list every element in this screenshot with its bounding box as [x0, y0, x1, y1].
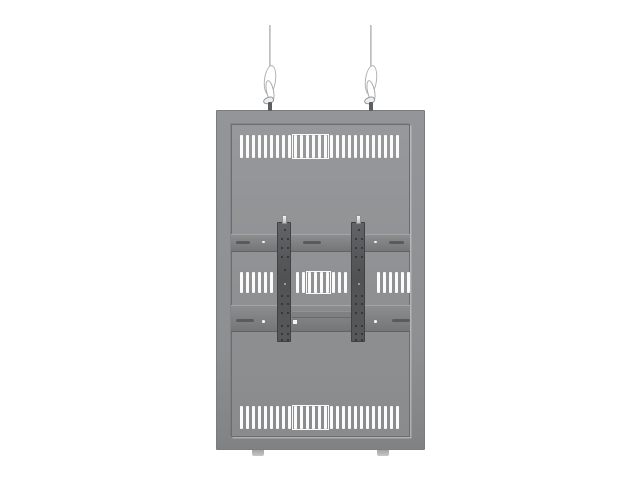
bracket-hole — [287, 247, 289, 249]
vent-slot — [332, 272, 335, 293]
vent-slot — [360, 406, 363, 429]
vent-row-top — [240, 135, 399, 158]
vent-slot — [348, 406, 351, 429]
vent-slot — [330, 135, 333, 158]
upper-mounting-rail — [231, 234, 410, 252]
vesa-bracket-arm-left — [277, 222, 291, 342]
rail-screw — [262, 241, 265, 244]
bracket-hole — [284, 229, 286, 231]
bracket-hole — [287, 339, 289, 341]
rail-screw — [262, 320, 265, 323]
vent-slot — [264, 406, 267, 429]
vent-slot — [282, 135, 285, 158]
vent-slot — [246, 272, 249, 293]
bracket-bolt-right — [356, 215, 361, 224]
bracket-hole — [355, 303, 357, 305]
vent-ladder-outline — [306, 271, 331, 294]
vent-slot — [372, 135, 375, 158]
vent-slot — [390, 135, 393, 158]
bracket-hole — [355, 312, 357, 314]
vent-slot — [258, 272, 261, 293]
bracket-hole — [361, 339, 363, 341]
bracket-hole — [281, 295, 283, 297]
vent-row-middle — [240, 272, 273, 293]
vent-slot — [396, 135, 399, 158]
bracket-hole — [287, 256, 289, 258]
vent-slot — [354, 135, 357, 158]
vent-slot — [348, 135, 351, 158]
attachment-pin-right — [369, 102, 373, 111]
vent-slot — [377, 272, 380, 293]
vent-slot — [270, 135, 273, 158]
vent-slot — [246, 135, 249, 158]
rail-slot — [236, 241, 250, 244]
vent-slot — [366, 406, 369, 429]
bracket-hole — [281, 325, 283, 327]
bracket-hole — [355, 333, 357, 335]
bracket-hole — [281, 256, 283, 258]
vent-slot — [396, 406, 399, 429]
vent-slot — [390, 406, 393, 429]
rail-slot — [303, 241, 321, 244]
bracket-hole — [361, 256, 363, 258]
vent-slot — [372, 406, 375, 429]
bracket-hole — [361, 333, 363, 335]
vent-slot — [342, 135, 345, 158]
vent-row-bottom — [240, 406, 399, 429]
rail-screw — [374, 241, 377, 244]
bracket-hole — [281, 303, 283, 305]
product-image — [0, 0, 640, 480]
bracket-hole — [284, 269, 286, 271]
vent-slot — [264, 272, 267, 293]
bracket-hole — [355, 247, 357, 249]
bracket-hole — [355, 339, 357, 341]
bracket-hole — [361, 303, 363, 305]
rail-screw — [374, 320, 377, 323]
vent-slot — [296, 272, 299, 293]
bracket-hole — [361, 247, 363, 249]
vent-slot — [384, 135, 387, 158]
vent-slot — [342, 406, 345, 429]
vent-slot — [360, 135, 363, 158]
vent-slot — [252, 406, 255, 429]
vent-slot — [389, 272, 392, 293]
bracket-hole — [287, 333, 289, 335]
bracket-hole — [287, 312, 289, 314]
bracket-hole — [287, 325, 289, 327]
bracket-hole — [287, 303, 289, 305]
bracket-hole — [355, 256, 357, 258]
vent-slot — [246, 406, 249, 429]
rail-slot — [236, 319, 254, 322]
vent-slot — [240, 135, 243, 158]
vent-slot — [401, 272, 404, 293]
vent-slot — [276, 406, 279, 429]
vent-slot — [276, 135, 279, 158]
rail-slot — [392, 319, 410, 322]
vent-slot — [282, 406, 285, 429]
bracket-bolt-left — [282, 215, 287, 224]
vent-slot — [336, 135, 339, 158]
vent-slot — [270, 406, 273, 429]
bracket-hole — [361, 325, 363, 327]
bracket-hole — [358, 269, 360, 271]
vent-slot — [338, 272, 341, 293]
bracket-crossbar — [292, 311, 351, 318]
vent-slot — [378, 406, 381, 429]
bracket-hole — [281, 333, 283, 335]
vent-slot — [270, 272, 273, 293]
bracket-hole — [361, 238, 363, 240]
vent-slot — [302, 272, 305, 293]
crossbar-screw — [293, 320, 297, 324]
vent-slot — [252, 272, 255, 293]
vent-row-middle — [377, 272, 410, 293]
vent-slot — [344, 272, 347, 293]
vent-slot — [330, 406, 333, 429]
attachment-pin-left — [268, 102, 272, 111]
bracket-hole — [355, 238, 357, 240]
vent-slot — [240, 272, 243, 293]
bracket-hole — [361, 312, 363, 314]
bracket-hole — [355, 295, 357, 297]
bracket-hole — [284, 283, 286, 285]
rail-slot — [389, 241, 404, 244]
vent-ladder-outline — [292, 405, 329, 430]
vent-slot — [264, 135, 267, 158]
vent-slot — [383, 272, 386, 293]
lower-mounting-rail — [231, 305, 410, 332]
bracket-hole — [281, 339, 283, 341]
bracket-hole — [287, 238, 289, 240]
vent-slot — [258, 406, 261, 429]
vent-slot — [366, 135, 369, 158]
vent-slot — [240, 406, 243, 429]
vent-slot — [336, 406, 339, 429]
bracket-hole — [281, 312, 283, 314]
bracket-hole — [358, 283, 360, 285]
bracket-hole — [281, 238, 283, 240]
vent-slot — [252, 135, 255, 158]
vent-slot — [288, 135, 291, 158]
bracket-hole — [361, 295, 363, 297]
vent-slot — [395, 272, 398, 293]
vent-ladder-outline — [292, 134, 329, 159]
vesa-bracket-arm-right — [351, 222, 365, 342]
vent-slot — [378, 135, 381, 158]
vent-row-middle — [296, 272, 347, 293]
bracket-hole — [355, 325, 357, 327]
vent-slot — [407, 272, 410, 293]
bracket-hole — [287, 295, 289, 297]
vent-slot — [384, 406, 387, 429]
vent-slot — [288, 406, 291, 429]
vent-slot — [258, 135, 261, 158]
vent-slot — [354, 406, 357, 429]
bracket-hole — [281, 247, 283, 249]
bracket-hole — [358, 229, 360, 231]
